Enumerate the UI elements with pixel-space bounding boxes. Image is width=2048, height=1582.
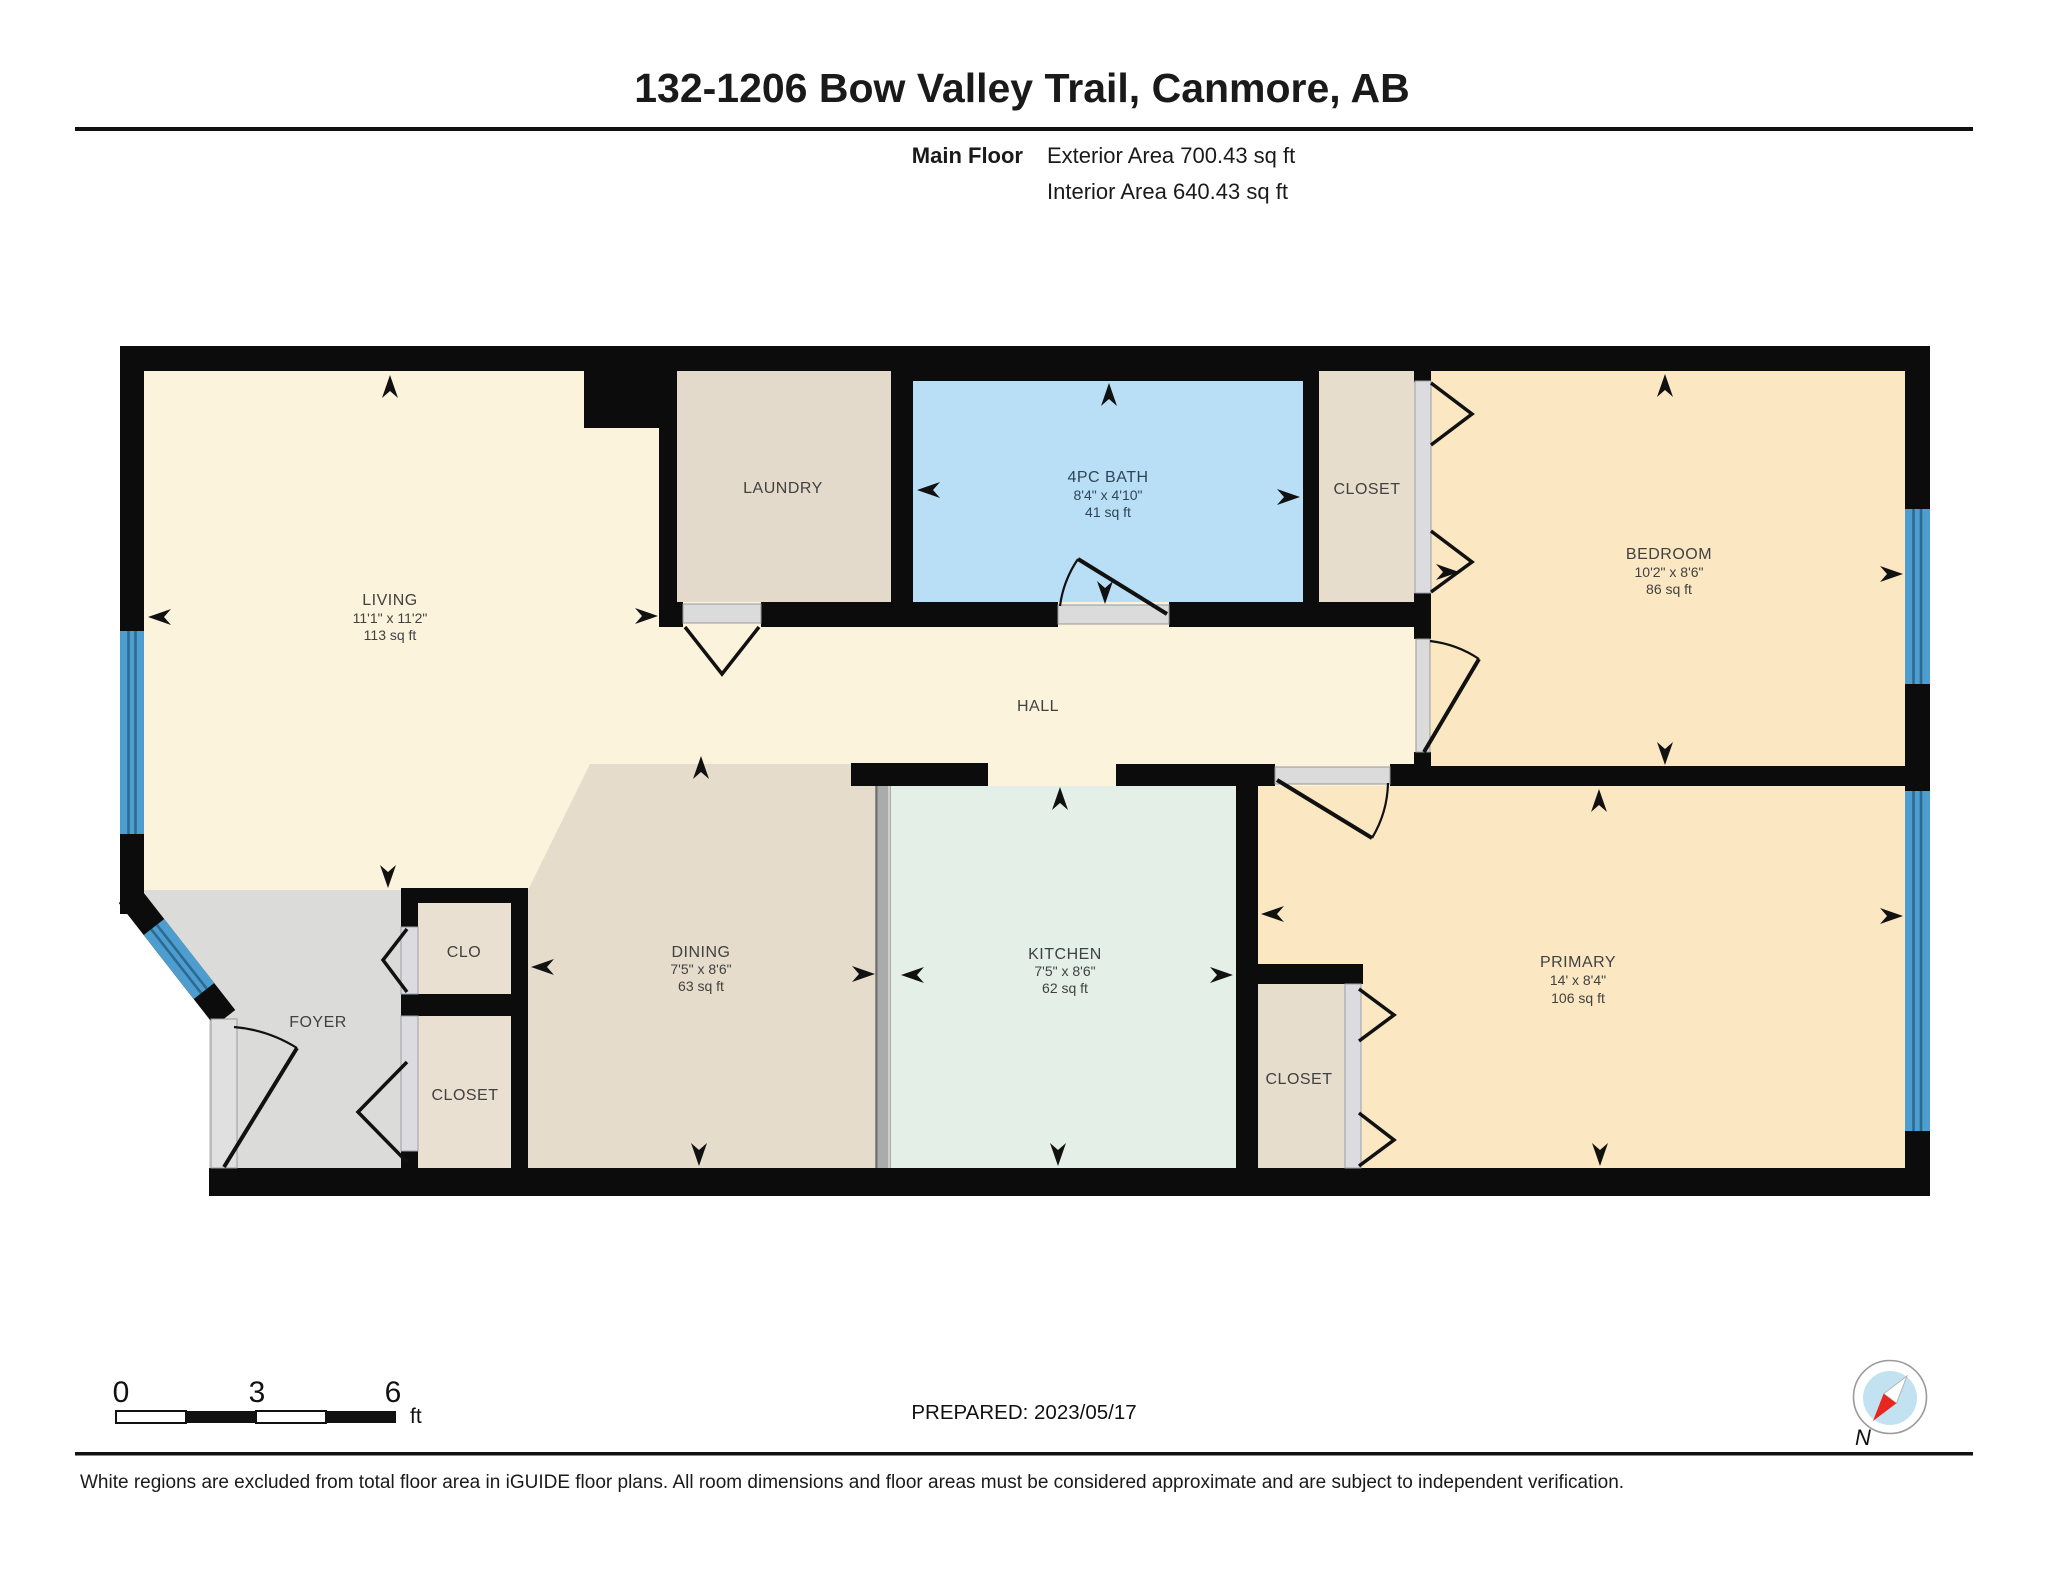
svg-text:132-1206 Bow Valley Trail, Can: 132-1206 Bow Valley Trail, Canmore, AB: [634, 65, 1410, 111]
svg-text:LIVING: LIVING: [362, 592, 417, 609]
svg-text:7'5" x 8'6": 7'5" x 8'6": [670, 961, 731, 977]
svg-text:HALL: HALL: [1017, 698, 1059, 715]
svg-text:63 sq ft: 63 sq ft: [678, 978, 724, 994]
svg-text:DINING: DINING: [672, 944, 731, 961]
svg-text:62 sq ft: 62 sq ft: [1042, 980, 1088, 996]
svg-text:7'5" x 8'6": 7'5" x 8'6": [1034, 963, 1095, 979]
svg-text:10'2" x 8'6": 10'2" x 8'6": [1635, 564, 1704, 580]
svg-text:PRIMARY: PRIMARY: [1540, 954, 1616, 971]
svg-text:CLO: CLO: [447, 944, 481, 961]
svg-text:N: N: [1855, 1425, 1871, 1450]
svg-text:41 sq ft: 41 sq ft: [1085, 504, 1131, 520]
svg-text:CLOSET: CLOSET: [431, 1087, 498, 1104]
svg-text:6: 6: [385, 1376, 402, 1409]
svg-text:KITCHEN: KITCHEN: [1028, 946, 1102, 963]
svg-text:4PC BATH: 4PC BATH: [1067, 469, 1148, 486]
svg-text:113 sq ft: 113 sq ft: [364, 627, 417, 643]
svg-text:Exterior Area 700.43 sq ft: Exterior Area 700.43 sq ft: [1047, 143, 1295, 168]
svg-text:CLOSET: CLOSET: [1265, 1071, 1332, 1088]
svg-text:11'1" x 11'2": 11'1" x 11'2": [353, 610, 428, 626]
svg-text:Main Floor: Main Floor: [912, 143, 1024, 168]
svg-text:8'4" x 4'10": 8'4" x 4'10": [1074, 487, 1143, 503]
svg-text:14' x 8'4": 14' x 8'4": [1550, 972, 1606, 988]
svg-text:BEDROOM: BEDROOM: [1626, 546, 1712, 563]
svg-text:0: 0: [113, 1376, 130, 1409]
svg-text:3: 3: [249, 1376, 266, 1409]
svg-text:ft: ft: [410, 1405, 422, 1428]
svg-text:86 sq ft: 86 sq ft: [1646, 581, 1692, 597]
svg-text:FOYER: FOYER: [289, 1014, 347, 1031]
svg-text:106 sq ft: 106 sq ft: [1551, 990, 1605, 1006]
svg-text:Interior Area 640.43 sq ft: Interior Area 640.43 sq ft: [1047, 179, 1288, 204]
svg-text:White regions are excluded fro: White regions are excluded from total fl…: [80, 1472, 1624, 1493]
svg-text:PREPARED: 2023/05/17: PREPARED: 2023/05/17: [911, 1401, 1136, 1424]
svg-text:CLOSET: CLOSET: [1333, 481, 1400, 498]
svg-text:LAUNDRY: LAUNDRY: [743, 480, 823, 497]
